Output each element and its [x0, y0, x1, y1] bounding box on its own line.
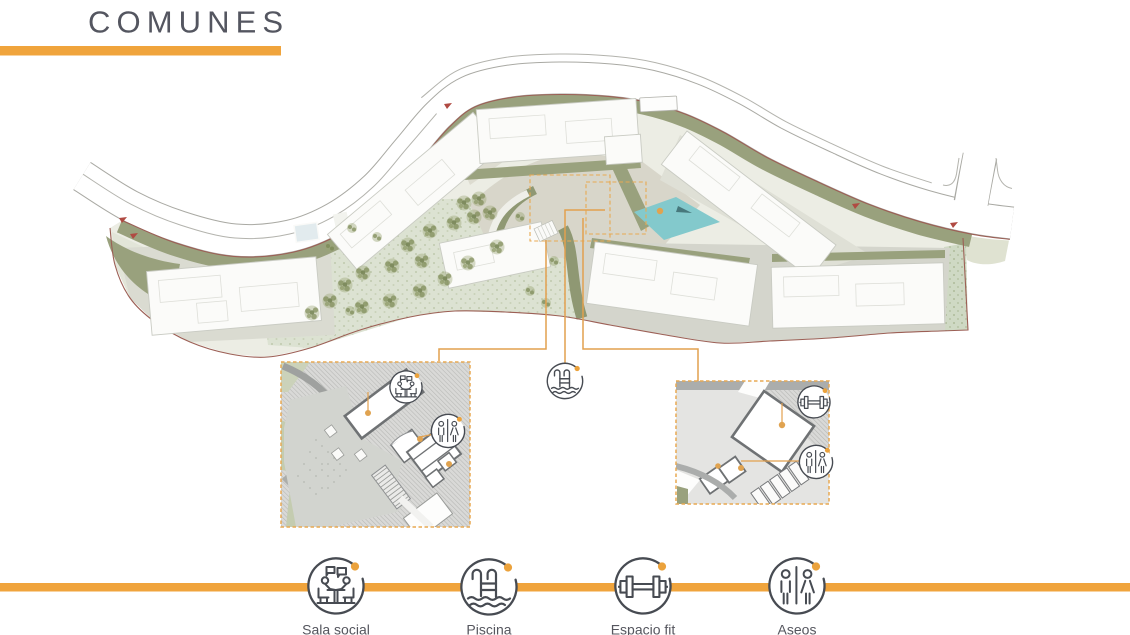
svg-text:COMUNES: COMUNES: [88, 5, 289, 40]
svg-text:Piscina: Piscina: [466, 622, 511, 635]
svg-text:Sala social: Sala social: [302, 622, 370, 635]
svg-text:Espacio fit: Espacio fit: [611, 622, 676, 635]
svg-text:Aseos: Aseos: [778, 622, 817, 635]
